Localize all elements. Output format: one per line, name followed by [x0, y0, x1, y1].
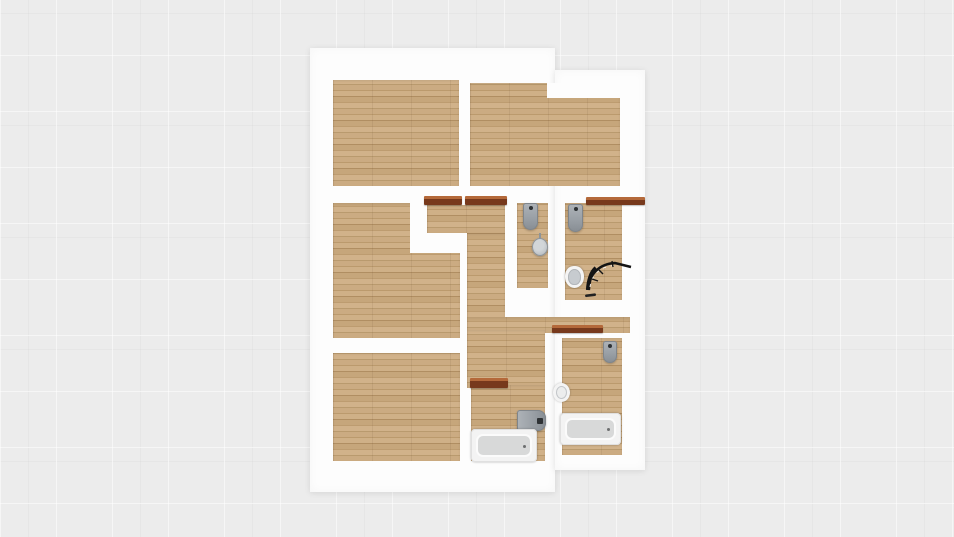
bath-center-cistern[interactable] [517, 410, 546, 431]
wall-notch-top-right-room [547, 83, 620, 98]
bath-right-round-sink[interactable] [553, 383, 570, 402]
wc-right-wall-toilet[interactable] [568, 204, 583, 232]
wall-notch-mid-left-b [427, 233, 460, 253]
floor-vestibule[interactable] [427, 205, 505, 233]
lintel-wc-right[interactable] [586, 197, 645, 205]
door-frame-bath-right[interactable] [552, 325, 603, 333]
wc-left-pedestal-sink[interactable] [532, 238, 548, 256]
wc-right-shower-enclosure[interactable] [585, 260, 633, 300]
floor-bedroom-top-right[interactable] [470, 83, 620, 186]
floor-corridor[interactable] [467, 233, 505, 323]
wc-right-toilet-bowl[interactable] [565, 266, 584, 288]
bath-right-cistern[interactable] [603, 341, 617, 363]
door-frame-bath-center[interactable] [470, 378, 508, 388]
door-frame-mid-left-room[interactable] [424, 196, 462, 205]
door-frame-vestibule[interactable] [465, 196, 507, 205]
bath-right-bathtub[interactable] [560, 413, 621, 445]
shower-enclosure-arc-icon [585, 260, 633, 300]
plan-canvas[interactable] [0, 0, 954, 537]
wc-left-wall-toilet[interactable] [523, 203, 538, 230]
wall-notch-mid-left-a [410, 203, 427, 253]
floor-bedroom-bottom-left[interactable] [333, 353, 460, 461]
floor-bedroom-top-left[interactable] [333, 80, 459, 186]
bath-center-bathtub[interactable] [471, 429, 537, 462]
